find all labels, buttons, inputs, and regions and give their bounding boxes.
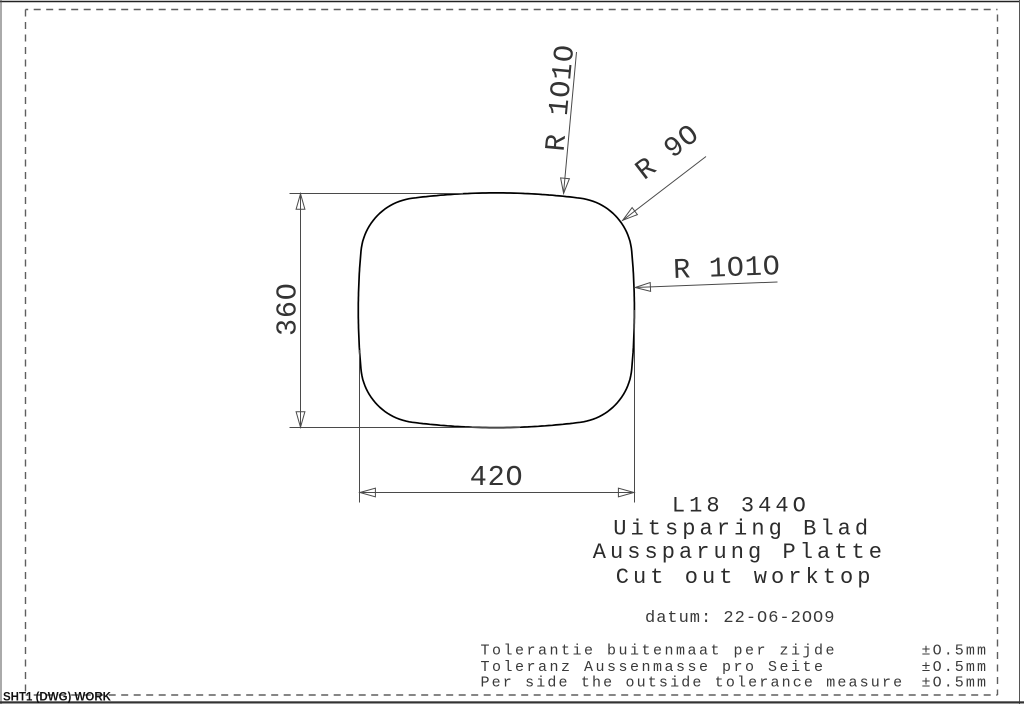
svg-text:42O: 42O xyxy=(470,461,524,494)
svg-text:Cut out worktop: Cut out worktop xyxy=(616,565,875,590)
svg-text:R 1O1O: R 1O1O xyxy=(673,250,782,287)
svg-text:36O: 36O xyxy=(272,282,305,336)
svg-text:±O.5mm: ±O.5mm xyxy=(922,642,989,659)
svg-text:±O.5mm: ±O.5mm xyxy=(922,659,989,676)
svg-text:Toleranz Aussenmasse pro Seite: Toleranz Aussenmasse pro Seite xyxy=(481,659,826,676)
svg-text:Per side the outside tolerance: Per side the outside tolerance measure xyxy=(481,675,905,692)
svg-text:Tolerantie buitenmaat per zijd: Tolerantie buitenmaat per zijde xyxy=(481,642,838,659)
svg-text:Aussparung Platte: Aussparung Platte xyxy=(593,540,886,565)
svg-text:datum: 22-O6-2OO9: datum: 22-O6-2OO9 xyxy=(645,609,835,628)
svg-text:L18 344O: L18 344O xyxy=(672,494,810,519)
svg-text:SHT1 (DWG) WORK: SHT1 (DWG) WORK xyxy=(3,692,112,704)
svg-text:Uitsparing Blad: Uitsparing Blad xyxy=(613,516,872,541)
svg-text:±O.5mm: ±O.5mm xyxy=(922,675,989,692)
